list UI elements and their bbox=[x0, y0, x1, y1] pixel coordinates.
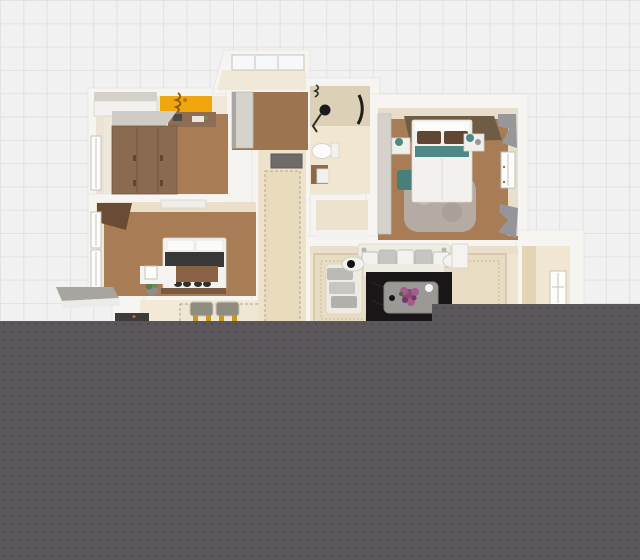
wardrobe-handle-2 bbox=[160, 155, 163, 161]
bed-kids-pillow-2 bbox=[196, 240, 223, 251]
nightstand-right-plant bbox=[466, 134, 474, 142]
bed-kids-pillow-1 bbox=[167, 240, 194, 251]
chaise-pillow-3 bbox=[331, 296, 357, 308]
flowers-3 bbox=[411, 288, 419, 296]
flowers-6 bbox=[412, 296, 417, 301]
wardrobe-handle-4 bbox=[160, 180, 163, 186]
kitchen-window[interactable] bbox=[145, 266, 157, 279]
wardrobe-3[interactable] bbox=[378, 114, 391, 234]
bed-kids-footboard bbox=[161, 288, 226, 294]
entry-lower-band bbox=[316, 230, 368, 240]
bed-kids-blanket bbox=[165, 252, 224, 267]
ceiling-light bbox=[161, 200, 206, 208]
bed-master-pillow-1 bbox=[417, 131, 441, 144]
hallway-rug[interactable] bbox=[265, 171, 300, 324]
desk-item-printer bbox=[173, 114, 182, 121]
decor-ball bbox=[425, 284, 433, 292]
dining-chair-2[interactable] bbox=[216, 302, 239, 316]
chaise-pillow-2 bbox=[329, 282, 355, 294]
side-room-wall-face bbox=[522, 246, 536, 308]
floorplan-svg bbox=[0, 0, 640, 560]
desk-lamp-dot bbox=[183, 98, 187, 102]
speaker-left-cone bbox=[347, 260, 355, 268]
nightstand-left-plant bbox=[395, 138, 403, 146]
nightstand-right-lamp bbox=[475, 139, 481, 145]
tv-stand[interactable] bbox=[115, 313, 149, 321]
bed-master-teal-runner bbox=[415, 146, 469, 157]
wardrobe-2-side bbox=[232, 92, 236, 148]
kitchen-cabinets[interactable] bbox=[176, 266, 218, 282]
flowers-5 bbox=[402, 297, 408, 303]
desk-item-paper bbox=[192, 116, 204, 122]
balcony-windows[interactable] bbox=[232, 55, 304, 70]
unrendered-area-bottom bbox=[0, 321, 640, 560]
desk-item-plant bbox=[204, 116, 208, 120]
screenshot-root bbox=[0, 0, 640, 560]
toilet-tank bbox=[331, 143, 339, 158]
design-canvas[interactable] bbox=[0, 0, 640, 560]
doormat[interactable] bbox=[271, 154, 302, 168]
closet-top bbox=[94, 92, 157, 101]
wardrobe[interactable] bbox=[112, 126, 177, 194]
dining-chair-1[interactable] bbox=[190, 302, 213, 316]
bed-master-headboard bbox=[415, 122, 469, 131]
shag-rug-blotch-2 bbox=[442, 202, 462, 222]
window-handle-2 bbox=[503, 181, 505, 183]
balcony-floor bbox=[217, 70, 306, 90]
decor-bowl bbox=[389, 295, 395, 301]
wardrobe-handle-1 bbox=[133, 155, 136, 161]
living-door[interactable] bbox=[452, 244, 468, 268]
toilet-bowl[interactable] bbox=[312, 144, 332, 159]
bath-cabinet-top bbox=[317, 169, 329, 183]
tv-stand-light bbox=[133, 315, 136, 318]
flowers-leaf bbox=[399, 292, 403, 296]
wardrobe-handle-3 bbox=[133, 180, 136, 186]
window-handle-1 bbox=[503, 166, 505, 168]
shower-head[interactable] bbox=[320, 105, 331, 116]
